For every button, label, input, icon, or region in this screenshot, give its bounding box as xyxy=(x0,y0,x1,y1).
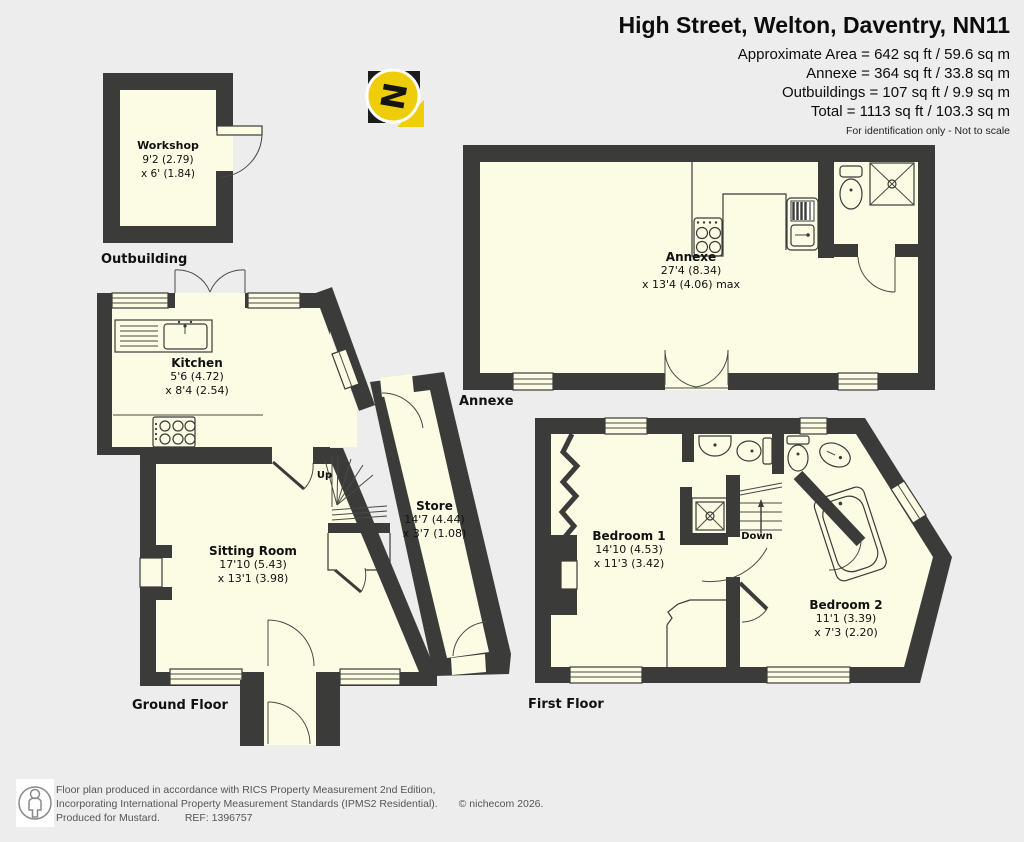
window xyxy=(605,418,647,434)
footer: Floor plan produced in accordance with R… xyxy=(56,783,543,825)
area-outbuildings: Outbuildings = 107 sq ft / 9.9 sq m xyxy=(618,83,1010,102)
area-annexe: Annexe = 364 sq ft / 33.8 sq m xyxy=(618,64,1010,83)
window xyxy=(570,667,642,683)
stairs-down-label: Down xyxy=(722,531,792,542)
footer-line1: Floor plan produced in accordance with R… xyxy=(56,783,543,797)
section-label-ground-floor: Ground Floor xyxy=(132,698,228,713)
room-label-sitting-room: Sitting Room 17'10 (5.43) x 13'1 (3.98) xyxy=(173,544,333,586)
footer-produced-for: Produced for Mustard. xyxy=(56,812,160,824)
room-label-bedroom1: Bedroom 1 14'10 (4.53) x 11'3 (3.42) xyxy=(549,529,709,571)
window xyxy=(767,667,850,683)
window xyxy=(112,293,168,308)
floorplan-page: High Street, Welton, Daventry, NN11 Appr… xyxy=(0,0,1024,842)
accessibility-person-icon xyxy=(16,779,54,827)
room-label-bedroom2: Bedroom 2 11'1 (3.39) x 7'3 (2.20) xyxy=(766,598,926,640)
section-label-first-floor: First Floor xyxy=(528,697,604,712)
scale-disclaimer: For identification only - Not to scale xyxy=(618,125,1010,137)
stairs-up-label: Up xyxy=(297,470,352,481)
area-approximate: Approximate Area = 642 sq ft / 59.6 sq m xyxy=(618,45,1010,64)
kitchen-double-doors xyxy=(175,270,245,308)
window xyxy=(838,373,878,390)
header: High Street, Welton, Daventry, NN11 Appr… xyxy=(618,12,1010,137)
room-label-annexe: Annexe 27'4 (8.34) x 13'4 (4.06) max xyxy=(606,250,776,292)
room-label-store: Store 14'7 (4.44) x 3'7 (1.08) xyxy=(357,499,512,541)
window xyxy=(340,669,400,685)
footer-line2: Incorporating International Property Mea… xyxy=(56,798,438,810)
footer-ref: REF: 1396757 xyxy=(185,812,253,824)
section-label-outbuilding: Outbuilding xyxy=(101,252,187,267)
footer-copyright: © nichecom 2026. xyxy=(459,798,544,810)
area-total: Total = 1113 sq ft / 103.3 sq m xyxy=(618,102,1010,121)
room-label-workshop: Workshop 9'2 (2.79) x 6' (1.84) xyxy=(104,139,232,181)
window xyxy=(248,293,300,308)
window xyxy=(800,418,827,434)
section-label-annexe: Annexe xyxy=(459,394,514,409)
workshop-door-leaf xyxy=(217,126,262,135)
annexe-bathroom-wall xyxy=(818,162,834,258)
north-compass-icon: N xyxy=(363,66,427,130)
window xyxy=(170,669,242,685)
room-label-kitchen: Kitchen 5'6 (4.72) x 8'4 (2.54) xyxy=(117,356,277,398)
page-title: High Street, Welton, Daventry, NN11 xyxy=(618,12,1010,39)
